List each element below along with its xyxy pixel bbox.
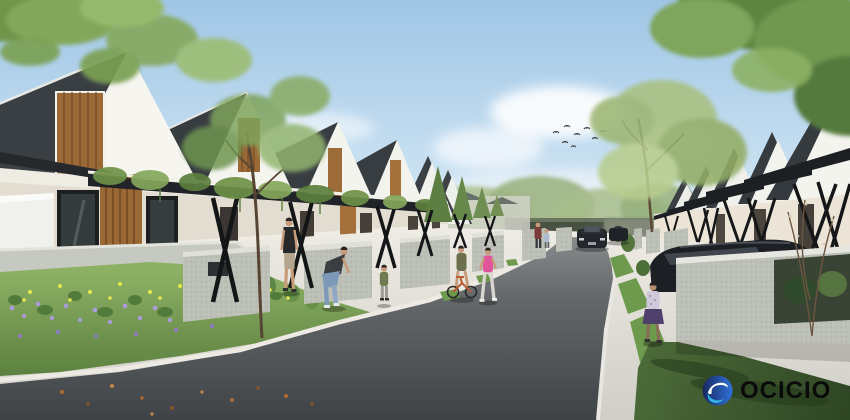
watermark: OCICIO — [702, 375, 831, 406]
fence-pillar — [522, 228, 546, 261]
fence-pillar — [400, 235, 450, 289]
ocicio-logo-icon — [702, 375, 733, 406]
watermark-brand-text: OCICIO — [740, 377, 831, 405]
scene-canvas — [0, 0, 850, 420]
driving-car-rear — [607, 226, 629, 246]
fence-pillar — [556, 227, 572, 252]
rendered-scene: OCICIO — [0, 0, 850, 420]
driving-car-front — [575, 226, 609, 252]
